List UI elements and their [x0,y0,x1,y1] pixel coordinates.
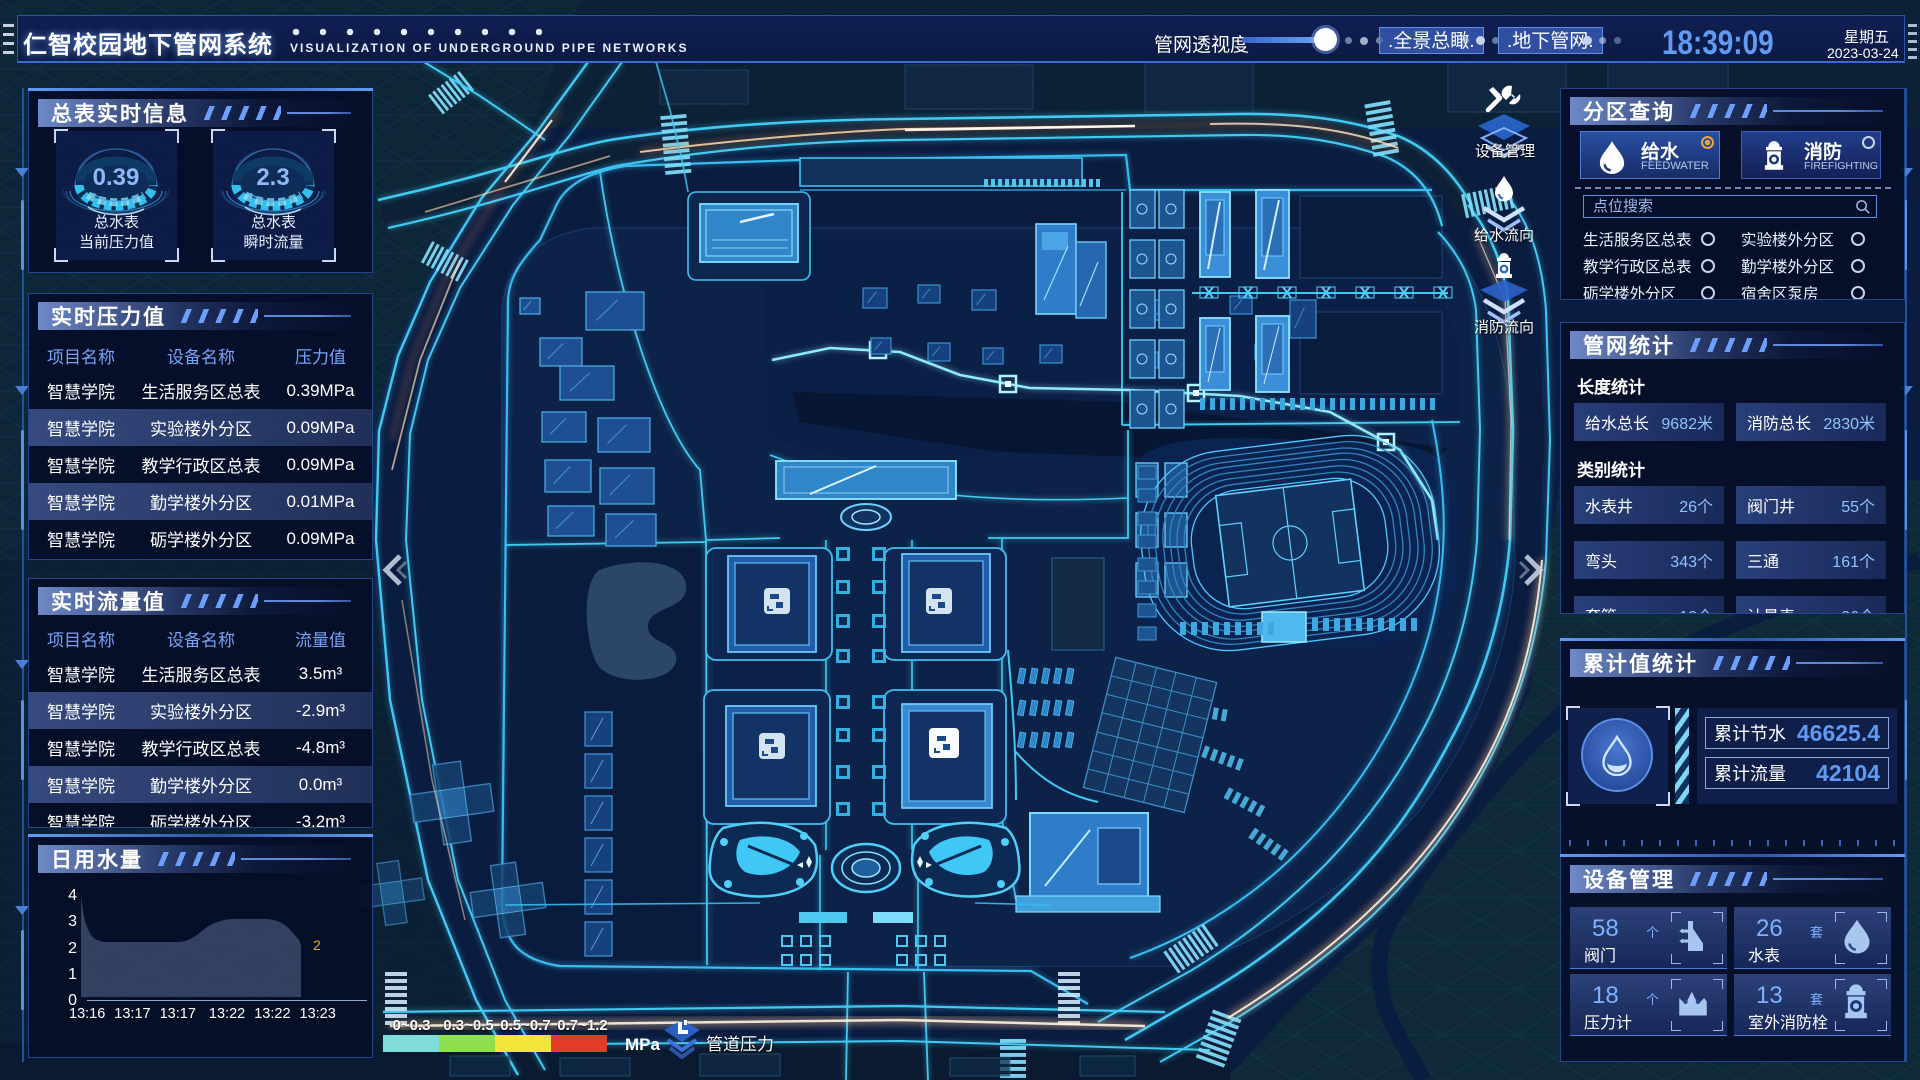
svg-text:0.39: 0.39 [93,164,140,191]
svg-text:2.3: 2.3 [256,164,289,191]
